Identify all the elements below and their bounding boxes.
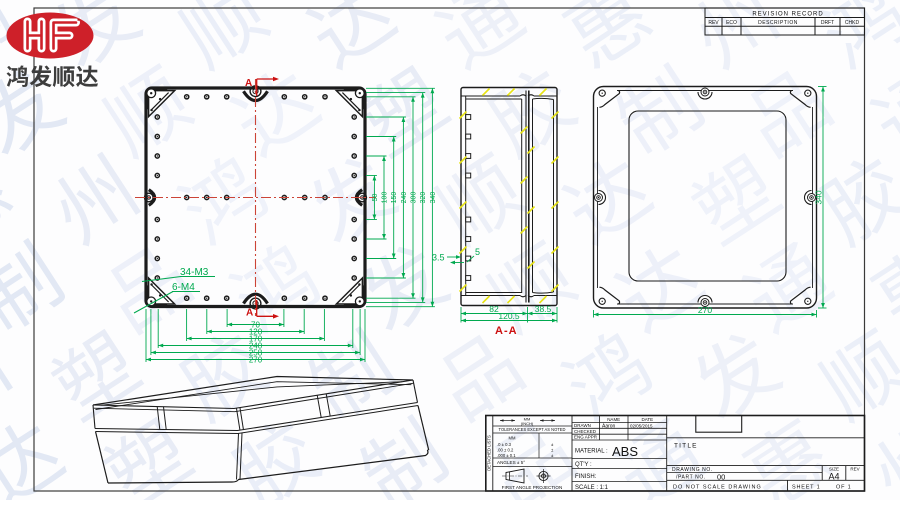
svg-text:DETACHED LISTS: DETACHED LISTS [487, 435, 492, 471]
svg-text:REV: REV [708, 20, 719, 26]
svg-text:DRAWN: DRAWN [574, 423, 591, 428]
svg-text:ABS: ABS [612, 444, 638, 459]
svg-text:.0 ± 0.3: .0 ± 0.3 [497, 442, 512, 447]
svg-text:02/05/2015: 02/05/2015 [630, 423, 653, 428]
svg-text:5: 5 [475, 247, 480, 257]
svg-text:REV: REV [850, 467, 859, 472]
svg-text:00: 00 [717, 472, 725, 481]
svg-text:DESCRIPTION: DESCRIPTION [758, 20, 798, 26]
svg-text:50: 50 [372, 194, 379, 202]
svg-text:REVISION RECORD: REVISION RECORD [752, 12, 823, 18]
svg-text:.000 ± 0.1: .000 ± 0.1 [497, 453, 516, 458]
svg-text:300: 300 [411, 192, 418, 204]
svg-text:MATERIAL :: MATERIAL : [575, 449, 608, 455]
svg-text:FIRST ANGLE PROJECTION: FIRST ANGLE PROJECTION [502, 485, 563, 490]
svg-text:38.5: 38.5 [535, 304, 552, 314]
svg-text:340: 340 [430, 192, 437, 204]
svg-text:SHEET 1: SHEET 1 [792, 484, 820, 490]
svg-text:QT'Y :: QT'Y : [575, 462, 592, 468]
svg-text:270: 270 [698, 305, 712, 315]
svg-text:A: A [246, 308, 253, 319]
svg-text:A: A [245, 78, 252, 89]
svg-text:/PART NO.: /PART NO. [676, 475, 706, 481]
svg-text:240: 240 [401, 192, 408, 204]
svg-text:A-A: A-A [495, 325, 518, 337]
svg-text:DO NOT SCALE DRAWING: DO NOT SCALE DRAWING [673, 484, 762, 490]
svg-text:OF 1: OF 1 [836, 484, 851, 490]
svg-text:ANGLES ± 5°: ANGLES ± 5° [497, 460, 525, 465]
svg-text:DRFT: DRFT [821, 20, 834, 26]
svg-text:340: 340 [814, 190, 824, 204]
svg-text:A4: A4 [828, 471, 839, 481]
svg-text:DATE: DATE [641, 417, 653, 422]
svg-text:.00 ± 0.2: .00 ± 0.2 [497, 448, 514, 453]
svg-text:DRAWING NO.: DRAWING NO. [672, 467, 713, 473]
svg-text:ENG APPR: ENG APPR [574, 435, 598, 440]
svg-text:3.5: 3.5 [432, 253, 445, 263]
svg-text:MM: MM [509, 436, 516, 441]
svg-text:CHECKED: CHECKED [574, 429, 597, 434]
svg-text:NAME: NAME [607, 417, 620, 422]
svg-text:ECO: ECO [726, 20, 737, 26]
svg-text:TOLERANCES EXCEPT AS NOTED: TOLERANCES EXCEPT AS NOTED [499, 427, 566, 432]
svg-text:Aaron: Aaron [602, 423, 616, 429]
svg-text:TITLE: TITLE [674, 443, 698, 450]
svg-text:(INCH): (INCH) [521, 421, 534, 426]
svg-text:120.5: 120.5 [498, 311, 520, 321]
svg-text:100: 100 [382, 192, 389, 204]
svg-text:320: 320 [420, 192, 427, 204]
svg-text:CHKD: CHKD [845, 20, 860, 26]
svg-text:270: 270 [249, 356, 263, 365]
svg-text:SCALE : 1:1: SCALE : 1:1 [575, 485, 609, 491]
svg-text:150: 150 [391, 192, 398, 204]
svg-text:FINISH:: FINISH: [575, 474, 597, 480]
